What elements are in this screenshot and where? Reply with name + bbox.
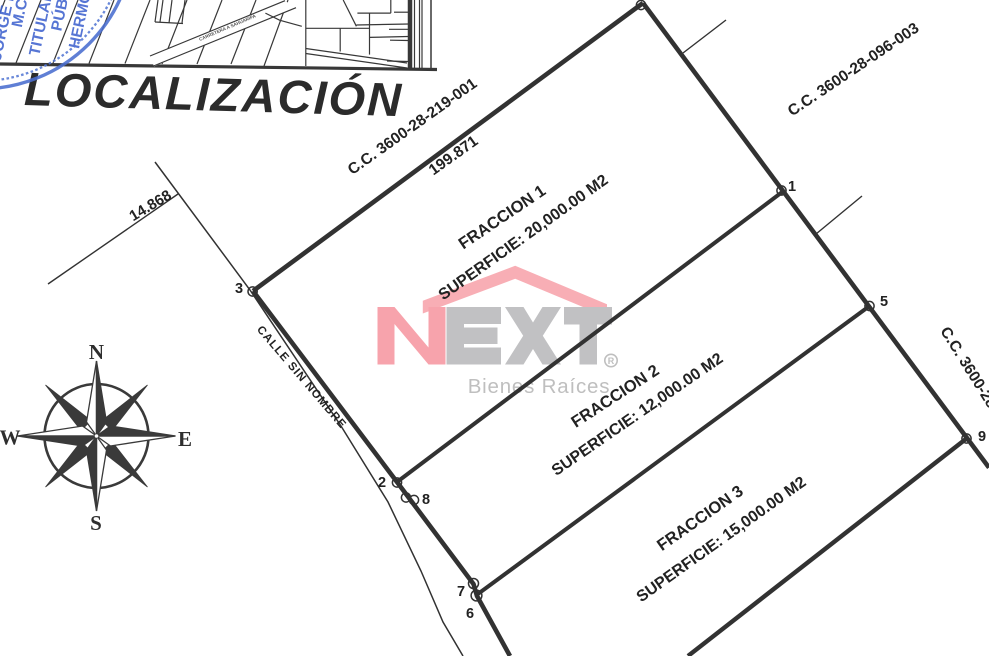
svg-text:M.C.: M.C.	[9, 0, 32, 29]
